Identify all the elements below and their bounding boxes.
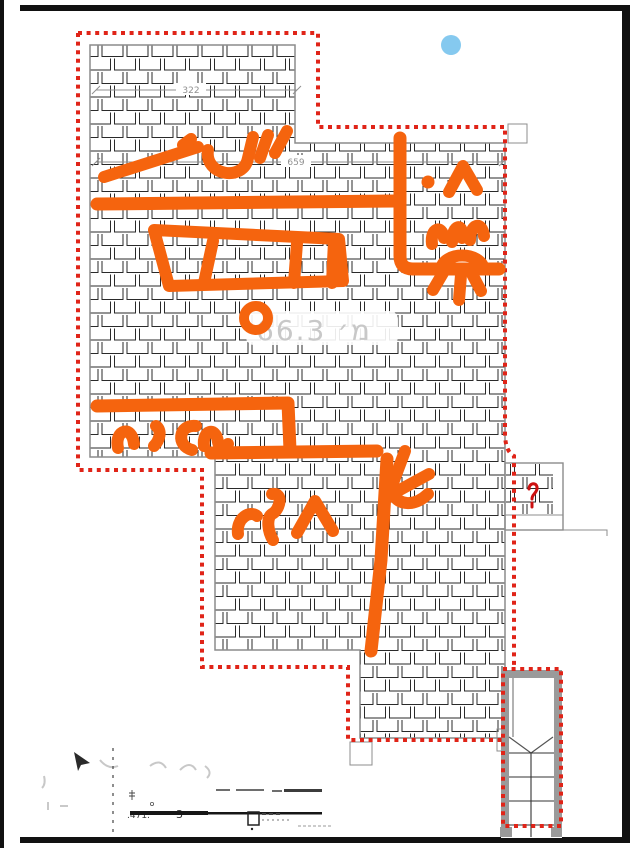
floor-hatch-area <box>90 45 505 738</box>
blue-dot-marker <box>441 35 461 55</box>
degree-mark <box>150 802 153 805</box>
bottom-stub-box <box>350 742 372 765</box>
frame-left <box>0 0 4 848</box>
corner-pillar-box <box>508 124 527 143</box>
thick-rule-a <box>130 811 208 815</box>
stair-post-left <box>500 827 512 837</box>
stamp-dot <box>251 828 253 830</box>
building-outline <box>90 45 505 738</box>
dagger-mark <box>129 790 135 800</box>
frame-right <box>622 5 630 843</box>
orange-line-middle2 <box>211 451 377 453</box>
stair-post-right <box>551 827 562 837</box>
dim-322-label: 322 <box>182 86 199 96</box>
cursor-arrow-mark <box>74 752 90 771</box>
frame-top <box>20 5 630 11</box>
parapet-line <box>563 530 607 536</box>
area-label-text: מ׳ 66.3 <box>256 314 372 347</box>
staircase <box>500 670 562 838</box>
orange-line-upper <box>97 201 398 204</box>
floorplan-canvas: 322 659 מ׳ 66.3 <box>0 0 634 848</box>
dash-row-thick <box>284 789 322 792</box>
title-block-remnants: .471. 3 <box>42 748 332 832</box>
side-room <box>505 463 607 536</box>
dash-row <box>216 790 282 791</box>
dim-659-label: 659 <box>287 158 304 168</box>
stair-wall-top <box>501 670 562 678</box>
faint-marks <box>48 802 68 810</box>
